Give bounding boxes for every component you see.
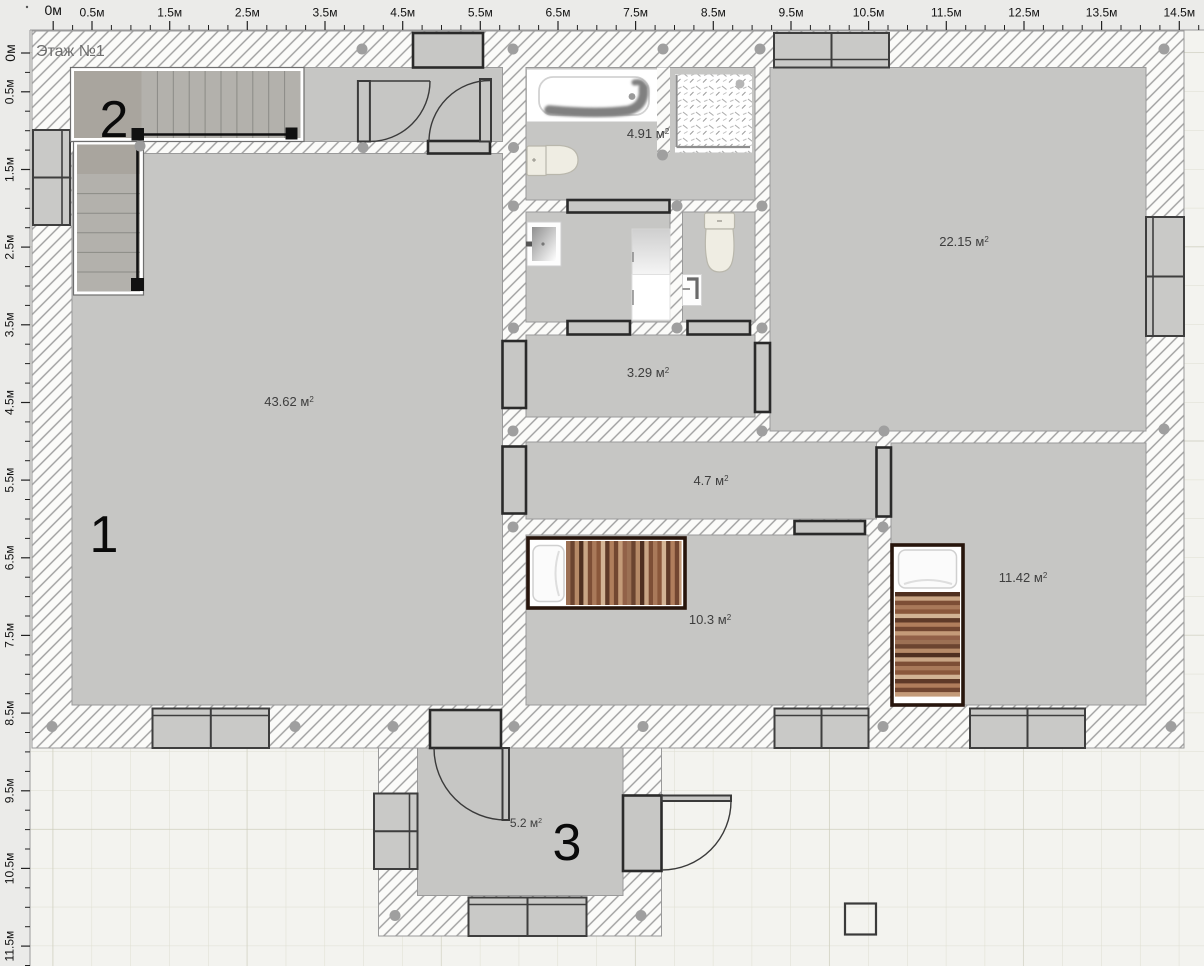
svg-text:4.5м: 4.5м <box>3 390 17 415</box>
svg-text:6.5м: 6.5м <box>546 6 571 20</box>
svg-text:4.91 м2: 4.91 м2 <box>627 126 670 141</box>
svg-text:7.5м: 7.5м <box>623 6 648 20</box>
svg-text:3.5м: 3.5м <box>313 6 338 20</box>
svg-text:3.29 м2: 3.29 м2 <box>627 365 670 380</box>
svg-text:5.5м: 5.5м <box>3 468 17 493</box>
svg-text:0м: 0м <box>44 2 61 18</box>
svg-text:2.5м: 2.5м <box>235 6 260 20</box>
svg-text:8.5м: 8.5м <box>701 6 726 20</box>
svg-text:3.5м: 3.5м <box>3 312 17 337</box>
svg-text:10.3 м2: 10.3 м2 <box>689 612 732 627</box>
svg-text:6.5м: 6.5м <box>3 545 17 570</box>
svg-text:9.5м: 9.5м <box>3 778 17 803</box>
svg-text:3: 3 <box>553 814 582 872</box>
svg-text:14.5м: 14.5м <box>1163 6 1195 20</box>
svg-text:11.5м: 11.5м <box>3 931 17 962</box>
svg-text:9.5м: 9.5м <box>779 6 804 20</box>
svg-text:1.5м: 1.5м <box>157 6 182 20</box>
svg-text:1: 1 <box>90 506 119 564</box>
svg-text:13.5м: 13.5м <box>1086 6 1118 20</box>
svg-text:4.7 м2: 4.7 м2 <box>693 473 729 488</box>
svg-text:5.2 м2: 5.2 м2 <box>510 816 542 830</box>
svg-text:7.5м: 7.5м <box>3 623 17 648</box>
svg-text:10.5м: 10.5м <box>853 6 885 20</box>
svg-text:2: 2 <box>100 91 129 149</box>
svg-text:43.62 м2: 43.62 м2 <box>264 394 314 409</box>
svg-text:2.5м: 2.5м <box>3 235 17 260</box>
svg-text:8.5м: 8.5м <box>3 701 17 726</box>
svg-text:1.5м: 1.5м <box>3 157 17 182</box>
svg-text:4.5м: 4.5м <box>390 6 415 20</box>
svg-text:11.42 м2: 11.42 м2 <box>999 570 1048 585</box>
svg-text:Этаж №1: Этаж №1 <box>36 43 105 60</box>
svg-text:0.5м: 0.5м <box>80 6 105 20</box>
svg-text:0м: 0м <box>2 44 18 61</box>
svg-text:0.5м: 0.5м <box>3 79 17 104</box>
svg-text:11.5м: 11.5м <box>931 6 962 20</box>
svg-text:12.5м: 12.5м <box>1008 6 1040 20</box>
svg-text:10.5м: 10.5м <box>3 853 17 885</box>
svg-text:5.5м: 5.5м <box>468 6 493 20</box>
svg-text:22.15 м2: 22.15 м2 <box>939 234 989 249</box>
